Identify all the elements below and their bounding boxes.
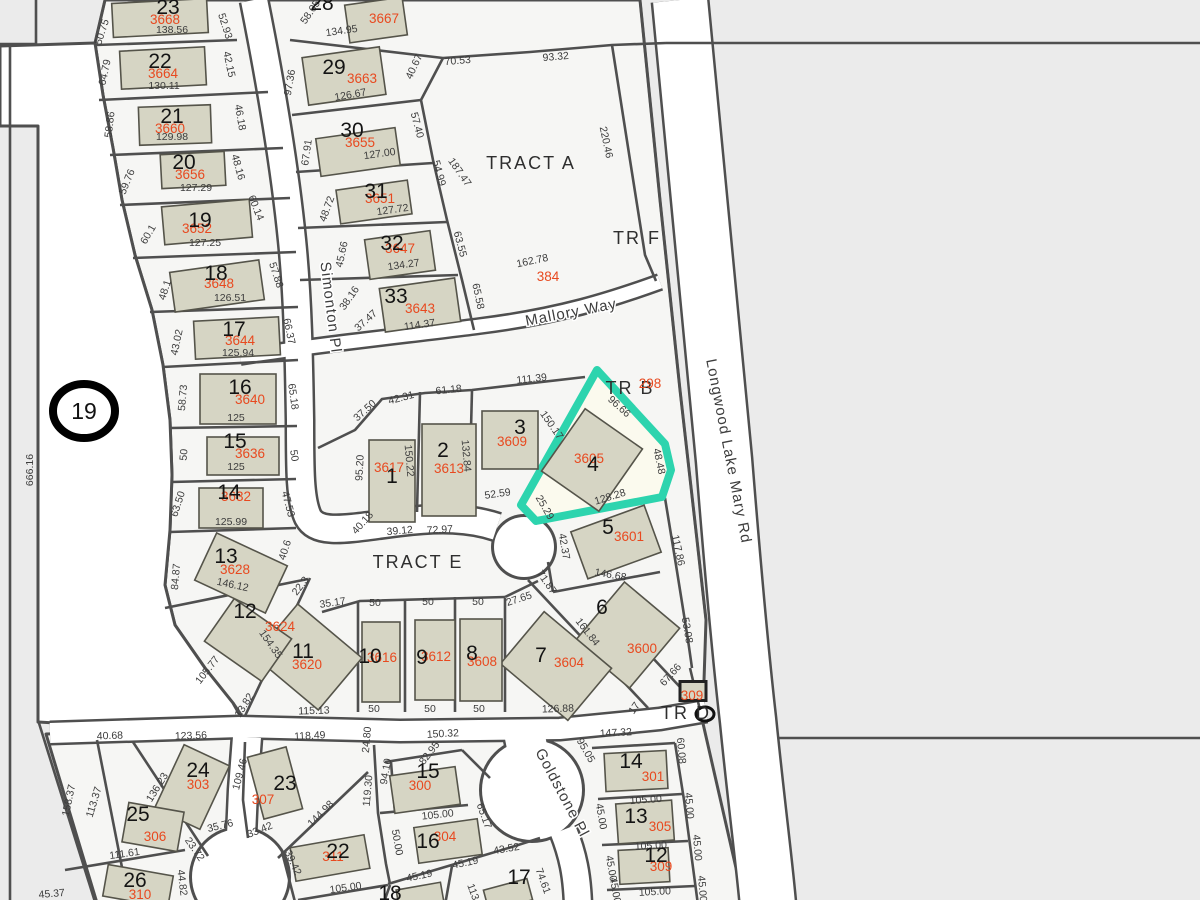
lot-number-27: 12 xyxy=(233,600,256,623)
dim-label-134: 45.00 xyxy=(695,875,709,900)
dim-label-29: 125.99 xyxy=(215,516,247,528)
dim-label-111: 45.37 xyxy=(38,887,65,900)
road-goldstone-pl[interactable] xyxy=(563,830,578,900)
dim-label-37: 93.32 xyxy=(542,50,569,64)
lot-number-18: 3 xyxy=(514,416,526,439)
lot-number-9: 14 xyxy=(217,481,241,504)
lot-number-16: 1 xyxy=(386,465,398,488)
dim-label-26: 125 xyxy=(227,461,245,473)
lot-number-33: 22 xyxy=(326,840,349,863)
lot-number-40: 12 xyxy=(644,844,667,867)
dim-label-125: 60.08 xyxy=(674,737,688,764)
dim-label-69: 72.97 xyxy=(426,523,453,536)
lot-number-19: 4 xyxy=(587,453,599,476)
dim-label-84: 50 xyxy=(473,703,485,715)
lot-number-24: 9 xyxy=(416,646,428,669)
dim-label-91: 115.13 xyxy=(298,704,330,717)
lot-number-29: 24 xyxy=(186,759,210,782)
tract-label-tract-a: TRACT A xyxy=(486,153,576,173)
lot-number-12: 30 xyxy=(340,119,363,142)
dim-label-128: 105.00 xyxy=(638,885,671,899)
lot-number-28: 13 xyxy=(214,545,237,568)
lot-number-25: 10 xyxy=(358,645,381,668)
address-label-3613: 3613 xyxy=(434,461,464,476)
lot-number-15: 33 xyxy=(384,285,407,308)
dim-label-14: 127.25 xyxy=(189,237,221,249)
plat-map[interactable]: 3091950.7552.93138.5664.7942.15130.1158.… xyxy=(0,0,1200,900)
dim-label-21: 58.73 xyxy=(176,384,190,411)
dim-label-65: 95.20 xyxy=(353,454,366,481)
dim-label-98: 147.32 xyxy=(599,726,632,740)
address-label-3643: 3643 xyxy=(405,301,435,316)
dim-label-30: 666.16 xyxy=(24,454,36,486)
parcel-circle-19-label: 19 xyxy=(71,398,97,424)
dim-label-79: 50 xyxy=(369,597,381,609)
red-marker-298: 298 xyxy=(639,376,662,391)
culdesac-tract-e-culdesac[interactable] xyxy=(494,517,554,577)
red-marker-384: 384 xyxy=(537,269,560,284)
address-label-3601: 3601 xyxy=(614,529,644,544)
lot-number-22: 7 xyxy=(535,644,547,667)
lot-number-39: 13 xyxy=(624,805,647,828)
address-label-trd: 309 xyxy=(681,688,704,703)
dim-label-78: 126.88 xyxy=(542,702,575,715)
lot-number-26: 11 xyxy=(292,640,314,663)
dim-label-82: 50 xyxy=(368,703,380,715)
dim-label-88: 84.87 xyxy=(169,563,183,590)
address-label-3600: 3600 xyxy=(627,641,657,656)
dim-label-68: 39.12 xyxy=(386,524,413,538)
lot-number-3: 20 xyxy=(172,151,195,174)
dim-label-25: 50 xyxy=(287,449,301,462)
lot-number-1: 22 xyxy=(148,50,171,73)
dim-label-80: 50 xyxy=(422,596,434,608)
address-label-301: 301 xyxy=(642,769,665,784)
lot-number-32: 26 xyxy=(123,869,146,892)
dim-label-97: 150.32 xyxy=(426,727,459,741)
dim-label-95: 40.68 xyxy=(97,730,124,743)
address-label-3667: 3667 xyxy=(369,11,399,26)
lot-number-34: 15 xyxy=(416,760,439,783)
lot-number-8: 15 xyxy=(223,430,246,453)
lot-number-38: 14 xyxy=(619,750,643,773)
dim-label-11: 127.29 xyxy=(180,182,212,194)
lot-number-5: 18 xyxy=(204,262,227,285)
tract-label-tr-d: TR D xyxy=(661,703,711,723)
lot-number-31: 23 xyxy=(273,772,296,795)
lot-number-6: 17 xyxy=(222,318,245,341)
dim-label-5: 130.11 xyxy=(148,80,179,92)
lot-number-13: 31 xyxy=(364,180,387,203)
dim-label-83: 50 xyxy=(424,703,436,715)
lot-number-35: 16 xyxy=(416,830,439,853)
address-label-3663: 3663 xyxy=(347,71,377,86)
lot-number-7: 16 xyxy=(228,376,251,399)
dim-label-132: 45.00 xyxy=(682,792,696,819)
dim-label-23: 125 xyxy=(227,412,245,424)
dim-label-133: 45.00 xyxy=(690,834,704,861)
lot-number-37: 18 xyxy=(378,882,401,900)
dim-label-112: 24.80 xyxy=(360,726,374,753)
lot-number-4: 19 xyxy=(188,209,211,232)
address-label-3624: 3624 xyxy=(265,619,296,634)
address-label-306: 306 xyxy=(144,829,167,844)
dim-label-36: 70.53 xyxy=(444,54,471,68)
lot-number-14: 32 xyxy=(380,232,403,255)
lot-number-23: 8 xyxy=(466,642,478,665)
tract-label-tr-f: TR F xyxy=(613,228,661,248)
dim-label-20: 125.94 xyxy=(222,347,254,359)
lot-number-11: 29 xyxy=(322,56,345,79)
lot-number-36: 17 xyxy=(507,866,530,889)
lot-number-17: 2 xyxy=(437,439,449,462)
address-label-307: 307 xyxy=(252,792,275,807)
address-label-305: 305 xyxy=(649,819,672,834)
lot-number-30: 25 xyxy=(126,803,149,826)
dim-label-17: 126.51 xyxy=(214,292,246,304)
address-label-3604: 3604 xyxy=(554,655,585,670)
dim-label-94: 123.56 xyxy=(175,729,208,742)
dim-label-96: 118.49 xyxy=(294,729,326,743)
dim-label-24: 50 xyxy=(178,448,191,461)
tract-label-tract-e: TRACT E xyxy=(373,552,464,572)
lot-number-0: 23 xyxy=(156,0,179,19)
lot-number-2: 21 xyxy=(160,105,183,128)
lot-number-10: 28 xyxy=(310,0,333,15)
lot-number-20: 5 xyxy=(602,516,614,539)
map-canvas[interactable]: 3091950.7552.93138.5664.7942.15130.1158.… xyxy=(0,0,1200,900)
dim-label-81: 50 xyxy=(472,596,484,608)
lot-number-21: 6 xyxy=(596,596,608,619)
